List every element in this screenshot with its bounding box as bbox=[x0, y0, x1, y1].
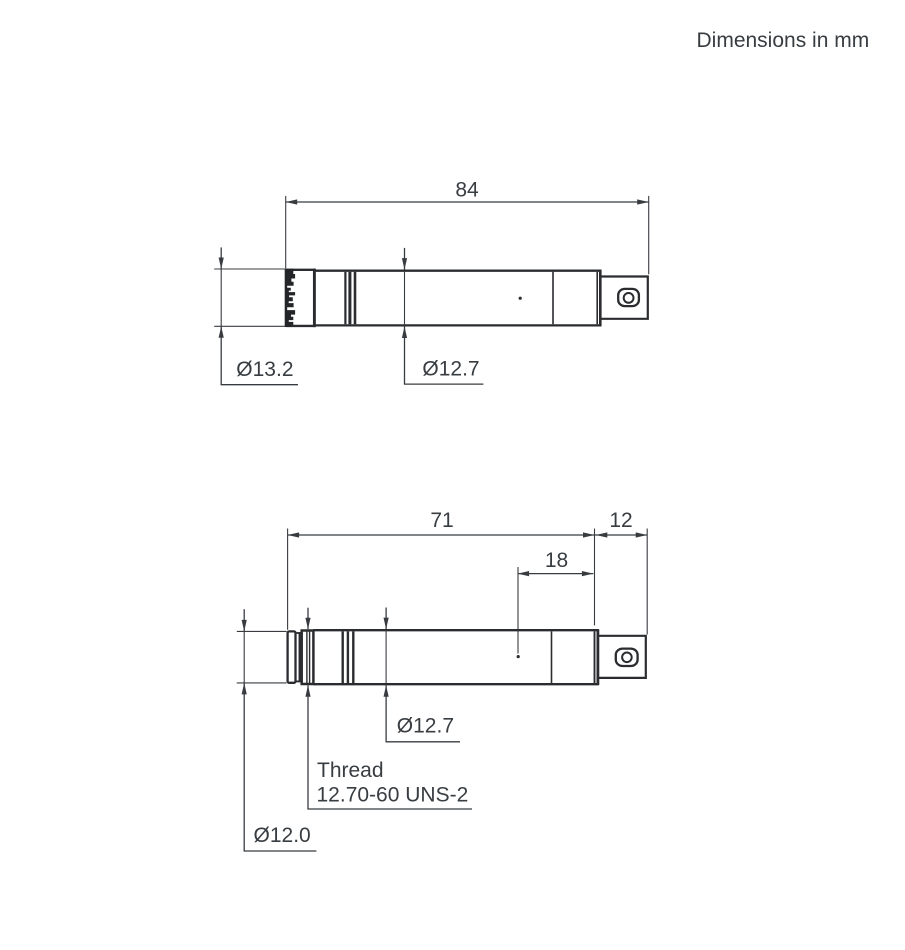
svg-text:12.70-60 UNS-2: 12.70-60 UNS-2 bbox=[317, 783, 469, 806]
svg-text:12: 12 bbox=[609, 509, 632, 532]
svg-text:Dimensions in mm: Dimensions in mm bbox=[697, 29, 870, 52]
svg-text:Thread: Thread bbox=[317, 759, 384, 782]
svg-text:Ø12.7: Ø12.7 bbox=[397, 714, 454, 737]
svg-text:Ø13.2: Ø13.2 bbox=[236, 358, 293, 381]
svg-text:18: 18 bbox=[545, 549, 568, 572]
svg-text:Ø12.0: Ø12.0 bbox=[254, 824, 311, 847]
svg-text:Ø12.7: Ø12.7 bbox=[422, 358, 479, 381]
svg-text:84: 84 bbox=[455, 179, 479, 202]
svg-text:71: 71 bbox=[430, 509, 453, 532]
